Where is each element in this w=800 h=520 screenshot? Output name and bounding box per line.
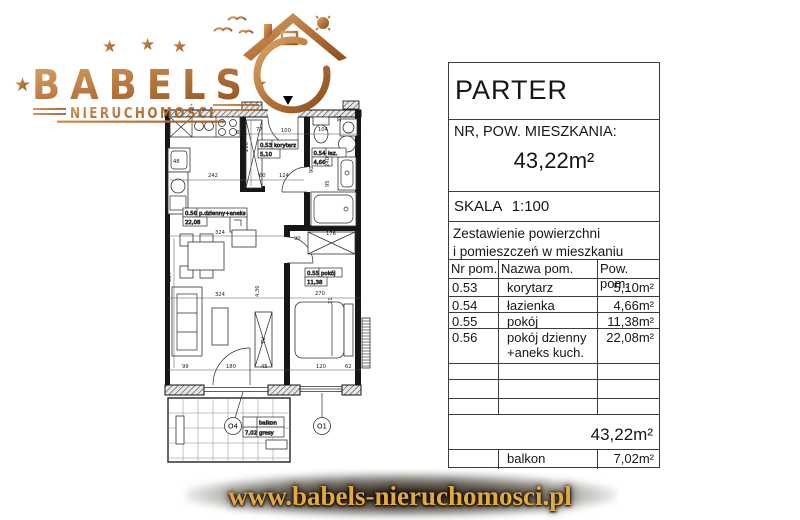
birds-icon — [214, 17, 253, 33]
svg-text:5,10: 5,10 — [260, 152, 273, 158]
mark-o4: O4 — [228, 423, 239, 431]
scale-label: SKALA 1:100 — [449, 191, 659, 221]
star-icon: ★ — [172, 37, 187, 57]
svg-text:p.dzienny+aneks: p.dzienny+aneks — [199, 211, 246, 217]
svg-text:176: 176 — [326, 231, 336, 237]
svg-text:łaz.: łaz. — [328, 151, 338, 157]
svg-text:90: 90 — [309, 166, 315, 173]
star-icon: ★ — [140, 35, 155, 55]
svg-text:95: 95 — [325, 180, 331, 187]
svg-text:4,36: 4,36 — [255, 285, 261, 297]
sun-icon — [313, 13, 333, 33]
svg-text:210: 210 — [244, 142, 250, 152]
bathroom-fixtures — [311, 117, 357, 226]
bedroom-furniture — [295, 232, 355, 358]
col-header-name: Nazwa pom. — [499, 260, 598, 278]
svg-text:270: 270 — [315, 291, 325, 297]
radiator — [362, 318, 370, 368]
svg-text:180: 180 — [226, 364, 236, 370]
star-icon: ★ — [253, 74, 267, 93]
svg-text:124: 124 — [279, 173, 290, 179]
svg-text:534: 534 — [167, 271, 173, 282]
svg-text:gresy: gresy — [259, 431, 275, 437]
svg-text:pokój: pokój — [321, 270, 335, 277]
table-header-row: Nr pom. Nazwa pom. Pow. pom. — [449, 259, 659, 278]
svg-text:0.53: 0.53 — [260, 143, 272, 149]
table-row: 0.53 korytarz 5,10m² — [449, 278, 659, 296]
col-header-area: Pow. pom. — [598, 260, 659, 278]
svg-text:21: 21 — [328, 297, 334, 304]
svg-text:90: 90 — [294, 236, 301, 242]
svg-text:45: 45 — [261, 364, 268, 370]
svg-text:35: 35 — [337, 115, 343, 122]
living-furniture: TV — [172, 234, 272, 367]
floor-plan: TV O4 O1 0.53 korytarz 5,10 0.54 łaz. 4,… — [160, 92, 438, 474]
table-row: 0.55 pokój 11,38m² — [449, 312, 659, 328]
svg-text:240: 240 — [325, 157, 331, 167]
floor-label: PARTER — [449, 63, 659, 119]
svg-text:0.54: 0.54 — [314, 151, 327, 157]
table-row-empty — [449, 363, 659, 379]
room-labels: 0.53 korytarz 5,10 0.54 łaz. 4,66 0.55 p… — [183, 140, 346, 437]
svg-text:60: 60 — [259, 173, 266, 179]
star-icon: ★ — [102, 37, 117, 57]
summary-title-line1: Zestawienie powierzchni — [449, 222, 659, 243]
table-row: 0.56 pokój dzienny +aneks kuch. 22,08m² — [449, 328, 659, 363]
entrance-arrow-icon — [283, 96, 293, 105]
table-row: 0.54 łazienka 4,66m² — [449, 296, 659, 312]
unit-number-label: NR, POW. MIESZKANIA: — [449, 120, 659, 140]
svg-text:242: 242 — [208, 173, 218, 179]
svg-text:120: 120 — [316, 364, 326, 370]
mark-o1: O1 — [317, 423, 327, 431]
svg-text:0.56: 0.56 — [185, 211, 198, 217]
svg-text:0.55: 0.55 — [307, 271, 319, 277]
col-header-nr: Nr pom. — [449, 260, 499, 278]
svg-text:88: 88 — [284, 364, 291, 370]
svg-text:22,08: 22,08 — [185, 220, 201, 226]
svg-text:11,38: 11,38 — [307, 280, 323, 286]
svg-text:65: 65 — [236, 130, 243, 136]
tv-label: TV — [261, 337, 267, 345]
svg-text:100: 100 — [281, 128, 291, 134]
svg-text:324: 324 — [215, 292, 226, 298]
info-panel: PARTER NR, POW. MIESZKANIA: 43,22m² SKAL… — [448, 62, 660, 468]
table-row-empty — [449, 379, 659, 398]
svg-text:104: 104 — [318, 127, 329, 133]
balcony-row: balkon 7,02m² — [449, 449, 659, 469]
svg-text:324: 324 — [215, 230, 226, 236]
unit-area-value: 43,22m² — [449, 148, 659, 174]
star-icon: ★ — [14, 74, 31, 96]
svg-text:korytarz: korytarz — [274, 143, 296, 149]
total-area-value: 43,22m² — [449, 414, 659, 449]
website-url: www.babels-nieruchomosci.pl — [160, 481, 640, 512]
svg-text:7,02: 7,02 — [245, 431, 257, 437]
svg-text:48: 48 — [173, 159, 180, 165]
brand-stars: ★ ★ ★ ★ ★ — [14, 35, 267, 96]
svg-text:balkon: balkon — [259, 421, 277, 427]
svg-text:62: 62 — [345, 364, 352, 370]
svg-text:99: 99 — [182, 364, 189, 370]
svg-text:77: 77 — [256, 127, 263, 133]
table-row-empty — [449, 398, 659, 414]
